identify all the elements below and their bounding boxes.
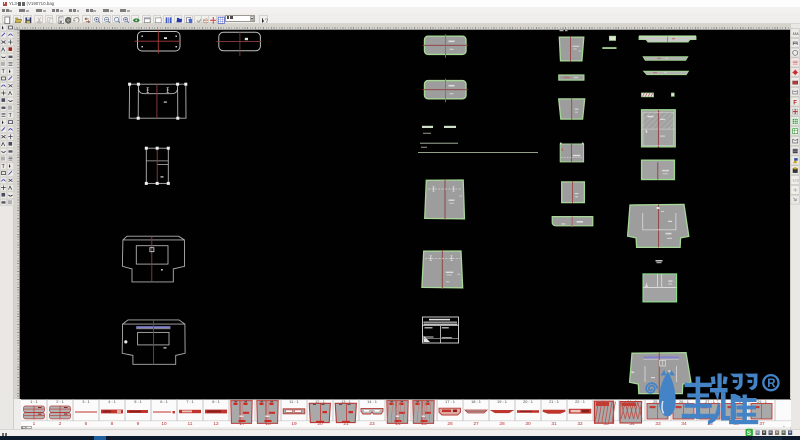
svg-text:12: 12 [213, 421, 219, 427]
svg-text:18 : 1: 18 : 1 [471, 399, 481, 404]
svg-text:6 : 1: 6 : 1 [160, 399, 168, 404]
svg-text:19: 19 [291, 421, 297, 427]
svg-text:7 : 1: 7 : 1 [186, 399, 194, 404]
svg-text:22 : 1: 22 : 1 [575, 399, 585, 404]
svg-text:F: F [793, 100, 797, 106]
svg-text:17 : 1: 17 : 1 [445, 399, 455, 404]
svg-text:32: 32 [577, 421, 583, 427]
svg-text:27: 27 [473, 421, 479, 427]
svg-text:23: 23 [369, 421, 375, 427]
svg-text:14 : 1: 14 : 1 [367, 399, 377, 404]
svg-text:19 : 1: 19 : 1 [497, 399, 507, 404]
svg-text:R: R [767, 378, 776, 390]
svg-text:8: 8 [110, 421, 113, 427]
svg-text:9: 9 [136, 421, 139, 427]
svg-text:20 : 1: 20 : 1 [523, 399, 533, 404]
svg-text:26: 26 [447, 421, 453, 427]
svg-text:11: 11 [187, 421, 192, 427]
svg-text:10: 10 [161, 421, 167, 427]
svg-text:1 : 1: 1 : 1 [30, 399, 38, 404]
svg-text:1: 1 [32, 421, 35, 427]
svg-text:5 : 1: 5 : 1 [134, 399, 142, 404]
svg-text:11 : 1: 11 : 1 [289, 399, 298, 404]
svg-text:31: 31 [551, 421, 557, 427]
svg-text:30: 30 [525, 421, 531, 427]
svg-text:28: 28 [499, 421, 505, 427]
svg-text:3 : 1: 3 : 1 [82, 399, 90, 404]
svg-text:4 : 1: 4 : 1 [108, 399, 116, 404]
svg-text:2 : 1: 2 : 1 [56, 399, 64, 404]
svg-text:2: 2 [58, 421, 61, 427]
svg-text:6: 6 [84, 421, 87, 427]
svg-text:8 : 1: 8 : 1 [212, 399, 220, 404]
svg-text:21 : 1: 21 : 1 [549, 399, 559, 404]
svg-text:123: 123 [792, 178, 799, 183]
